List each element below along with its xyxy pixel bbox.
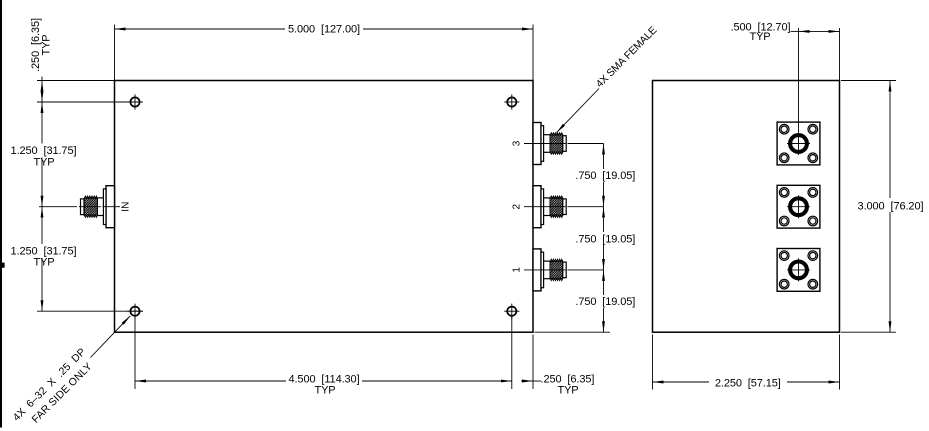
svg-text:TYP: TYP bbox=[33, 257, 54, 269]
svg-text:.750 [19.05]: .750 [19.05] bbox=[575, 296, 635, 308]
svg-text:IN: IN bbox=[121, 202, 132, 212]
svg-text:5.000 [127.00]: 5.000 [127.00] bbox=[288, 23, 360, 35]
svg-text:1: 1 bbox=[512, 267, 523, 273]
svg-text:2: 2 bbox=[512, 203, 523, 209]
svg-text:TYP: TYP bbox=[41, 34, 53, 55]
svg-text:3: 3 bbox=[512, 140, 523, 146]
svg-text:TYP: TYP bbox=[314, 385, 335, 397]
svg-text:1.250 [31.75]: 1.250 [31.75] bbox=[11, 145, 77, 157]
svg-text:TYP: TYP bbox=[33, 157, 54, 169]
svg-text:2.250 [57.15]: 2.250 [57.15] bbox=[715, 378, 781, 390]
svg-text:TYP: TYP bbox=[749, 31, 770, 43]
svg-text:TYP: TYP bbox=[557, 385, 578, 397]
svg-text:.750 [19.05]: .750 [19.05] bbox=[575, 233, 635, 245]
svg-text:3.000 [76.20]: 3.000 [76.20] bbox=[858, 201, 924, 213]
svg-text:.750 [19.05]: .750 [19.05] bbox=[575, 170, 635, 182]
